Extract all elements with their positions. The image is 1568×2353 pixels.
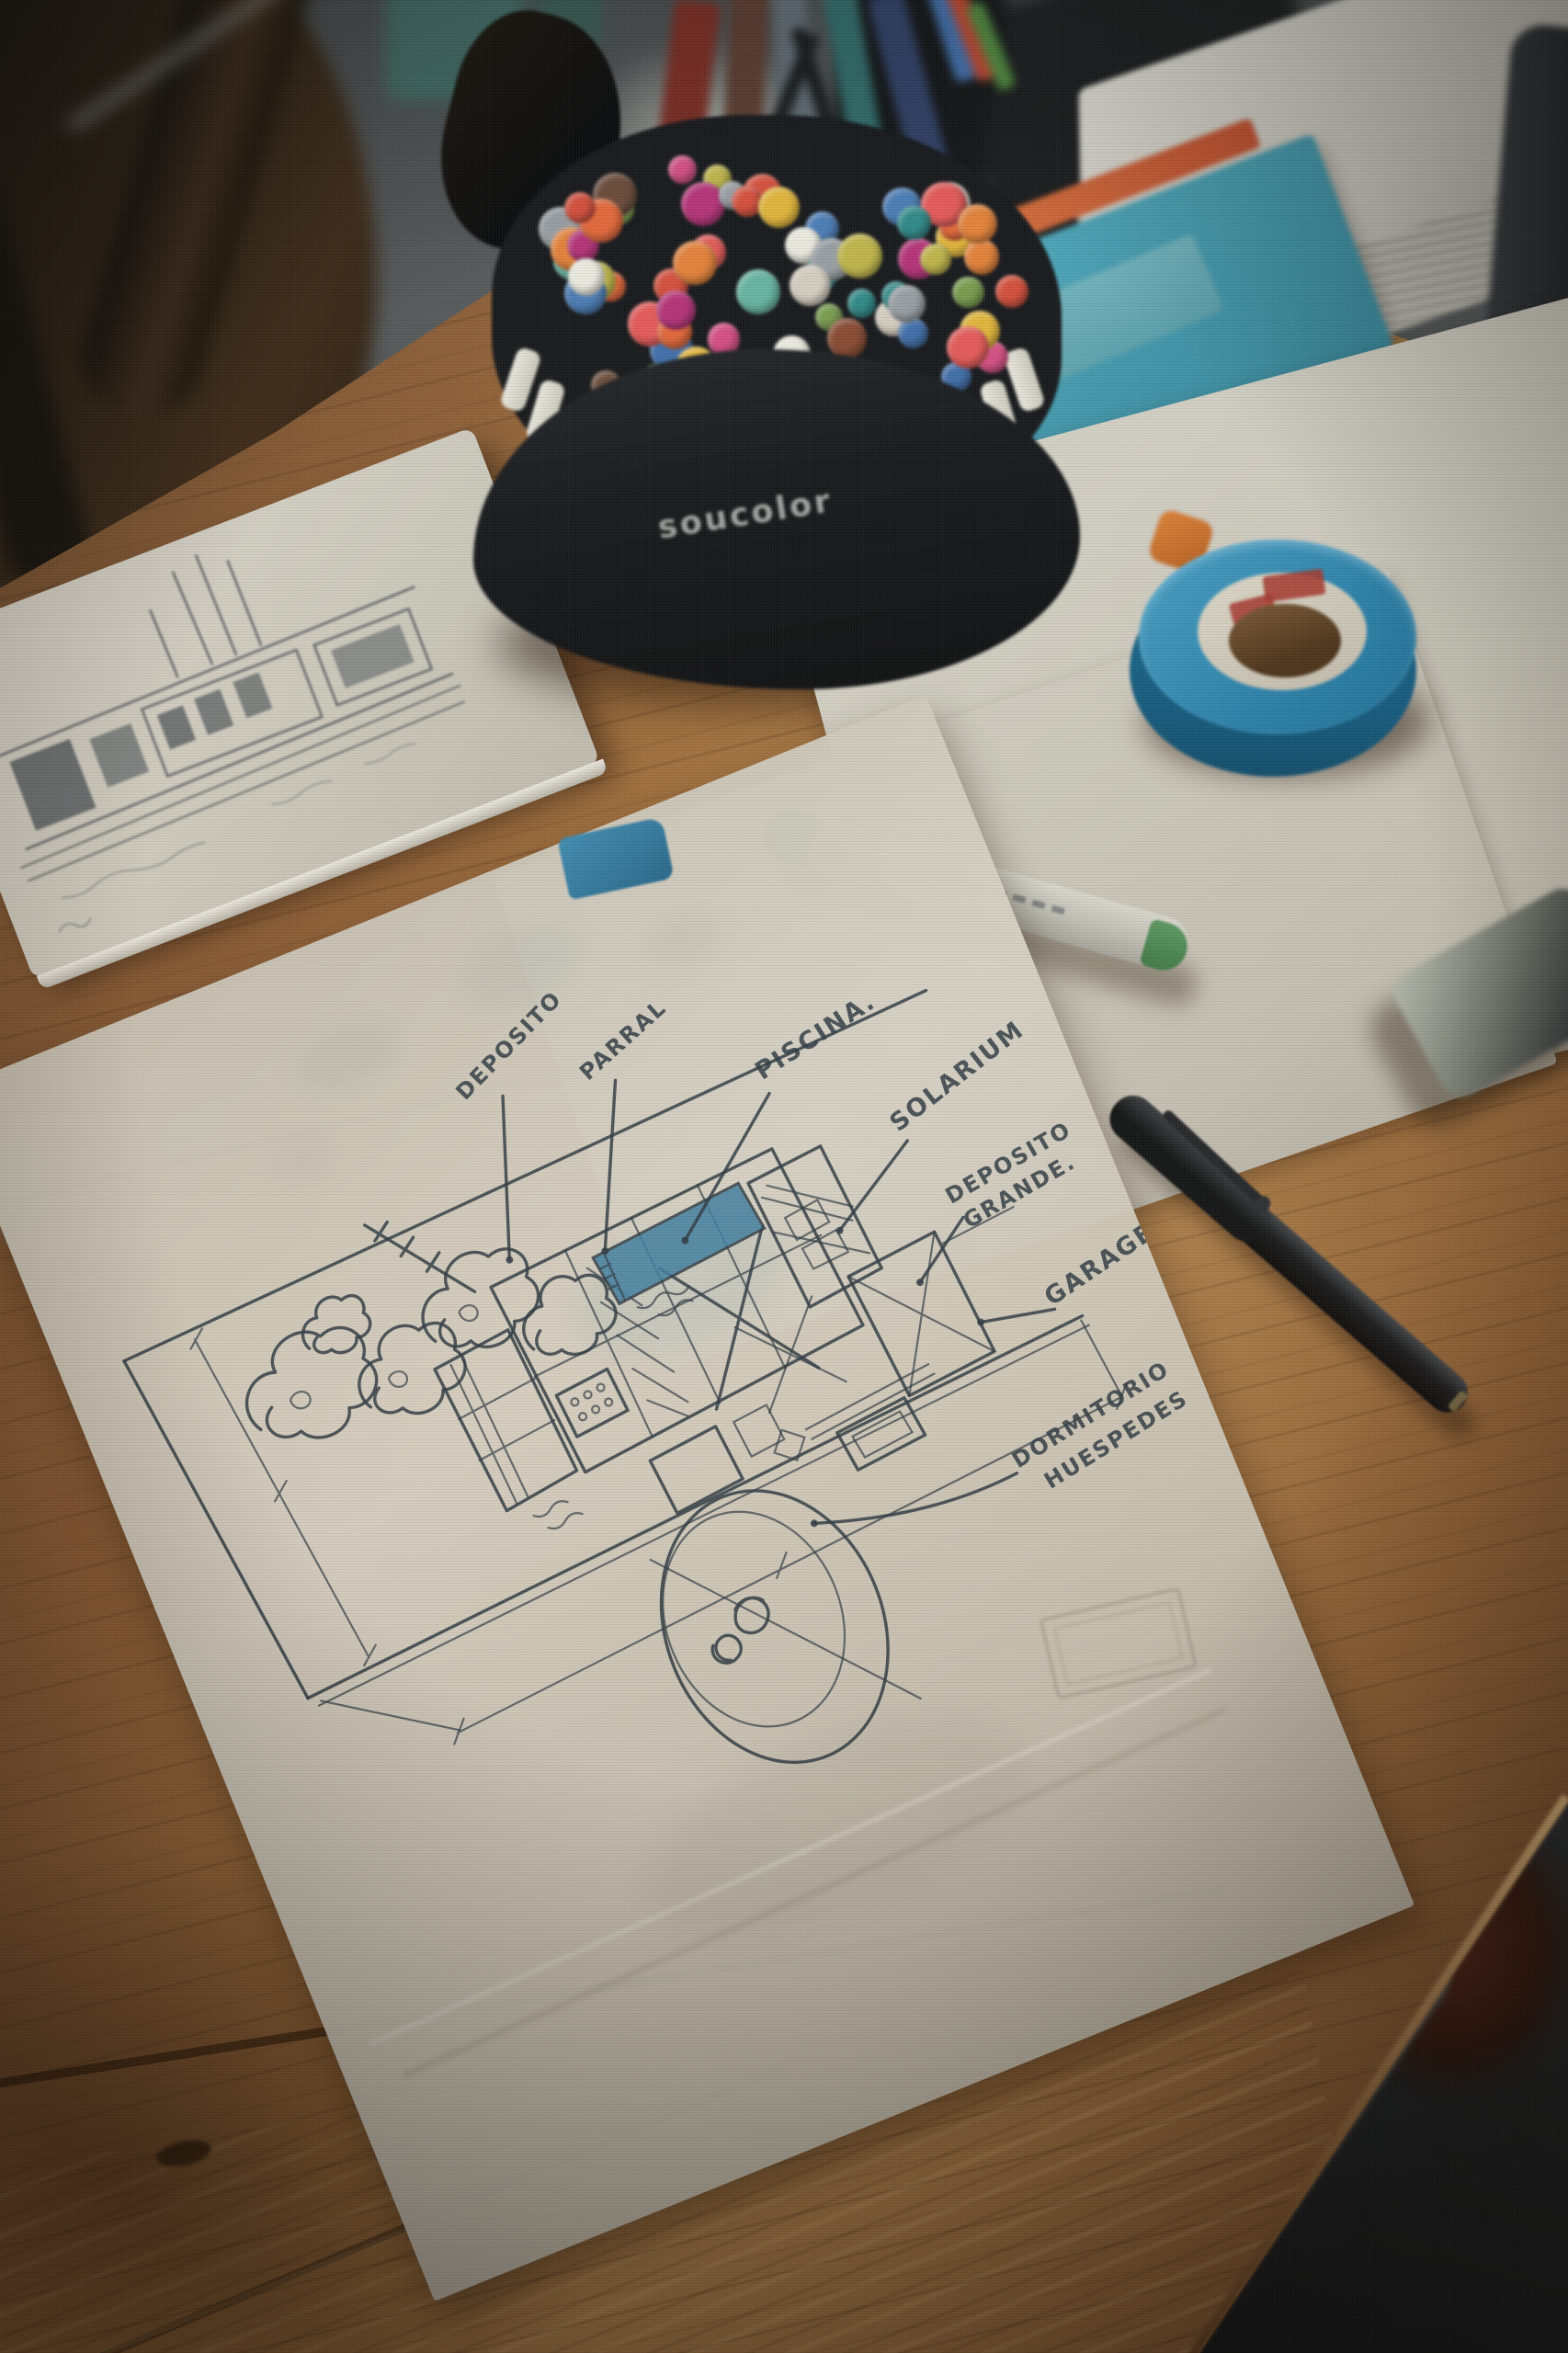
marker-cap — [732, 186, 763, 217]
marker-cap — [920, 244, 951, 275]
plan-label-deposito: DEPOSITO — [450, 986, 567, 1106]
pen-body — [1103, 1088, 1476, 1420]
marker-cap — [736, 269, 780, 313]
marker-cap — [790, 265, 831, 306]
tape-hole — [1229, 604, 1341, 677]
wood-knot — [154, 2136, 213, 2171]
marker-cap — [897, 206, 931, 240]
marker-cap — [564, 192, 596, 223]
marker-cap — [827, 318, 867, 358]
marker-cap — [837, 233, 882, 278]
marker-cap — [758, 187, 800, 228]
marker-cap — [668, 155, 697, 184]
smartphone — [1397, 905, 1568, 1080]
plan-label-piscina: PISCINA. — [750, 987, 881, 1086]
plan-label-solarium: SOLARIUM — [884, 1016, 1029, 1138]
marker-cap — [568, 258, 605, 295]
marker-cap — [673, 241, 717, 285]
marker-cap — [958, 204, 998, 244]
desk-photo-scene: soucolor — [0, 0, 1568, 2353]
plan-label-parral: PARRAL — [574, 995, 672, 1086]
marker-cap — [952, 277, 984, 309]
black-fountain-pen — [1103, 1071, 1568, 1457]
pen-cap — [1101, 1086, 1280, 1251]
blue-masking-tape-roll — [1126, 519, 1438, 795]
marker-cap — [995, 275, 1028, 308]
marker-cap — [898, 318, 928, 348]
marker-cap — [681, 182, 725, 226]
marker-cap — [847, 289, 877, 318]
marker-cap — [964, 239, 999, 274]
marker-cap — [888, 285, 926, 323]
marker-case: soucolor — [473, 78, 1089, 685]
marker-cap — [656, 290, 696, 330]
marker-cap — [947, 326, 989, 369]
